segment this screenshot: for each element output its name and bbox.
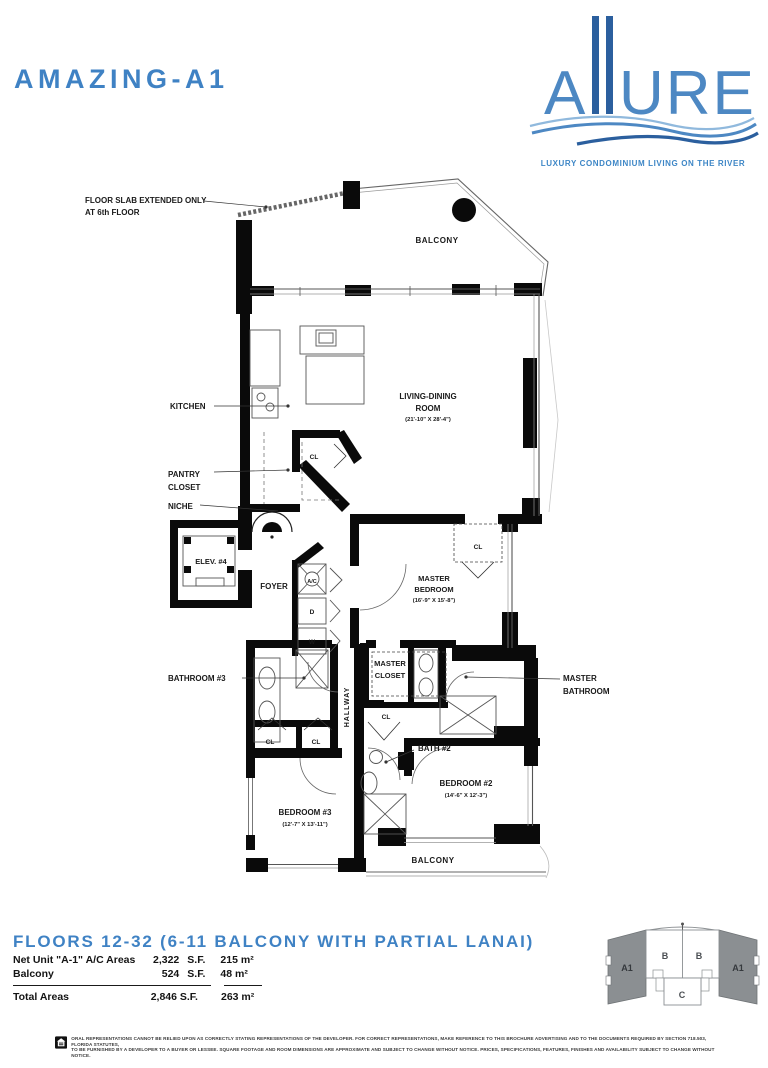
label-cl-bed3b: CL [312,739,321,746]
slab-note-leader [204,201,268,209]
label-pantry-line2: CLOSET [168,483,201,492]
label-masterbed-dim: (16'-9" X 15'-8") [413,598,455,604]
label-bedroom2-dim: (14'-6" X 12'-3") [445,793,487,799]
row-metric: 48 m² [210,968,265,982]
disclaimer-line1: ORAL REPRESENTATIONS CANNOT BE RELIED UP… [71,1036,717,1047]
label-masterbath-line1: MASTER [563,674,597,683]
floors-heading: FLOORS 12-32 (6-11 BALCONY WITH PARTIAL … [13,932,534,952]
total-label: Total Areas [13,991,147,1005]
logo-bar-2 [606,16,613,114]
label-living-line2: ROOM [416,404,441,413]
label-living-line1: LIVING-DINING [399,392,456,401]
balcony-column [452,198,476,222]
keyplan-label-a1-left: A1 [621,963,633,973]
page-title: AMAZING-A1 [14,64,229,95]
slab-note-line1: FLOOR SLAB EXTENDED ONLY [85,196,207,205]
label-bedroom3: BEDROOM #3 [279,808,332,817]
label-cl-bed3a: CL [266,739,275,746]
keyplan-label-b1: B [662,951,669,961]
label-masterbed-line1: MASTER [418,574,450,583]
total-metric: 263 m² [204,991,265,1005]
label-bath2: BATH #2 [418,744,451,753]
row-sf-unit: S.F. [179,968,210,982]
top-balcony-piers [343,181,476,222]
label-pantry-line1: PANTRY [168,470,201,479]
label-mcloset-line1: MASTER [374,659,406,668]
keyplan-label-c: C [679,990,686,1000]
label-bedroom2: BEDROOM #2 [440,779,493,788]
exterior-walls [236,220,542,872]
label-ac: A/C [307,579,317,585]
label-hallway: HALLWAY [344,687,351,728]
label-balcony-bottom: BALCONY [411,856,454,865]
label-bathroom3: BATHROOM #3 [168,674,226,683]
label-living-dim: (21'-10" X 28'-4") [405,417,451,423]
keyplan: A1 B B C A1 [600,916,765,1016]
label-mcloset-line2: CLOSET [375,671,406,680]
label-kitchen: KITCHEN [170,402,206,411]
label-foyer: FOYER [260,582,288,591]
slab-note-line2: AT 6th FLOOR [85,208,140,217]
label-masterbed-line2: BEDROOM [414,585,453,594]
row-label: Balcony [13,968,148,982]
bottom-balcony-rail [366,846,549,878]
keyplan-label-a1-right: A1 [732,963,744,973]
top-balcony-outline [238,179,558,512]
row-sf-unit: S.F. [179,954,210,968]
label-cl-master: CL [474,544,483,551]
label-dryer: D [310,609,315,616]
equal-housing-icon [55,1036,67,1049]
total-sf: 2,846 S.F. [147,991,204,1005]
keyplan-label-b2: B [696,951,703,961]
label-bedroom3-dim: (12'-7" X 13'-11") [282,822,327,828]
row-label: Net Unit "A-1" A/C Areas [13,954,148,968]
logo-letters-ure: URE [619,59,756,128]
label-cl-linen: CL [382,714,391,721]
logo-tagline: LUXURY CONDOMINIUM LIVING ON THE RIVER [541,159,746,168]
allure-logo: A URE LUXURY CONDOMINIUM LIVING ON THE R… [522,14,762,172]
label-niche: NICHE [168,502,194,511]
logo-bar-1 [592,16,599,114]
table-row: Net Unit "A-1" A/C Areas 2,322 S.F. 215 … [13,954,265,968]
disclaimer: ORAL REPRESENTATIONS CANNOT BE RELIED UP… [55,1036,717,1059]
label-cl-pantry: CL [310,454,319,461]
label-elevator: ELEV. #4 [195,557,227,566]
label-balcony-top: BALCONY [415,236,458,245]
window-walls [246,285,540,868]
row-sf-value: 524 [148,968,179,982]
label-washer: W [309,639,316,646]
row-metric: 215 m² [210,954,265,968]
table-divider [13,985,265,986]
table-row: Balcony 524 S.F. 48 m² [13,968,265,982]
area-table: Net Unit "A-1" A/C Areas 2,322 S.F. 215 … [13,954,265,1005]
row-sf-value: 2,322 [148,954,179,968]
table-total-row: Total Areas 2,846 S.F. 263 m² [13,991,265,1005]
label-masterbath-line2: BATHROOM [563,687,610,696]
disclaimer-line2: TO BE FURNISHED BY A DEVELOPER TO A BUYE… [71,1047,717,1058]
